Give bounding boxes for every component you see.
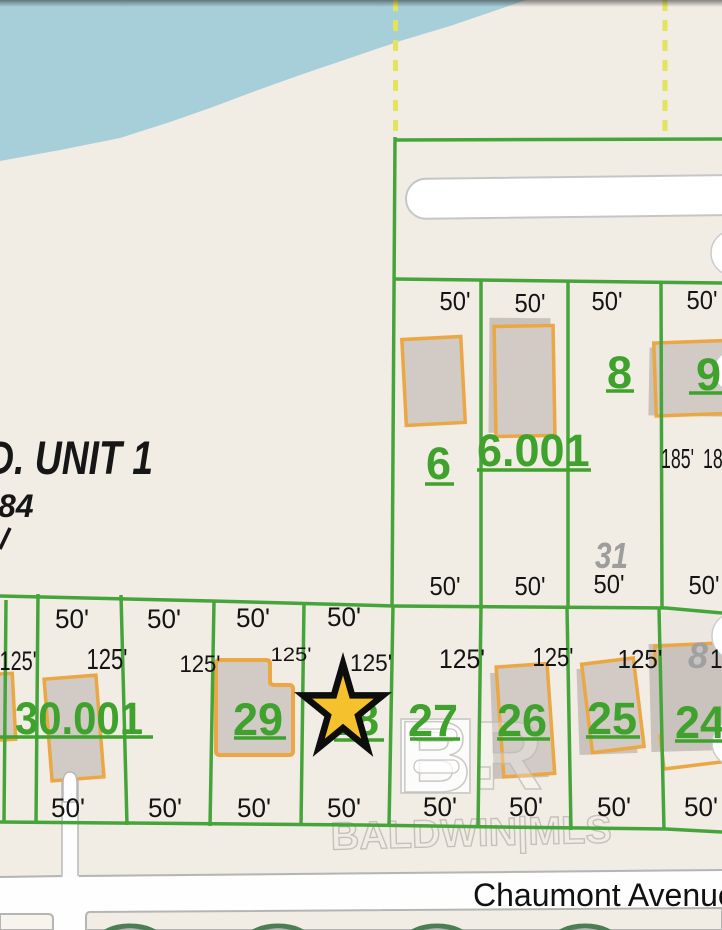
svg-text:50': 50' — [327, 602, 361, 632]
svg-text:50': 50' — [515, 288, 546, 318]
svg-text:185': 185' — [661, 443, 694, 474]
svg-text:50': 50' — [597, 792, 631, 822]
svg-text:50': 50' — [515, 571, 546, 601]
svg-text:50': 50' — [423, 792, 457, 822]
svg-text:50': 50' — [327, 793, 361, 823]
svg-text:50': 50' — [236, 603, 270, 633]
svg-text:31: 31 — [595, 535, 628, 576]
svg-text:50': 50' — [689, 570, 720, 600]
svg-text:84: 84 — [0, 488, 34, 524]
svg-text:50': 50' — [509, 792, 543, 822]
svg-text:125': 125' — [180, 651, 221, 678]
svg-text:50': 50' — [430, 571, 461, 601]
svg-text:50': 50' — [684, 792, 718, 822]
svg-text:185': 185' — [703, 443, 722, 474]
svg-text:50': 50' — [55, 604, 89, 634]
svg-text:125': 125' — [350, 650, 392, 677]
svg-text:Chaumont Avenue: Chaumont Avenue — [473, 877, 722, 913]
svg-text:125': 125' — [439, 644, 485, 674]
svg-text:125': 125' — [710, 644, 722, 674]
svg-text:50': 50' — [237, 793, 271, 823]
svg-text:50': 50' — [148, 793, 182, 823]
svg-text:125': 125' — [618, 644, 663, 674]
svg-text:8: 8 — [688, 635, 708, 676]
svg-text:125': 125' — [0, 646, 37, 676]
svg-text:50': 50' — [687, 285, 718, 315]
svg-text:6: 6 — [426, 438, 451, 489]
svg-text:50': 50' — [440, 286, 471, 316]
svg-text:50': 50' — [147, 604, 181, 634]
svg-text:125': 125' — [87, 644, 128, 676]
svg-text:50': 50' — [592, 286, 623, 316]
svg-text:D. UNIT 1: D. UNIT 1 — [0, 431, 153, 484]
svg-text:125': 125' — [533, 642, 574, 672]
svg-text:125': 125' — [271, 645, 312, 666]
svg-text:50': 50' — [51, 793, 85, 823]
